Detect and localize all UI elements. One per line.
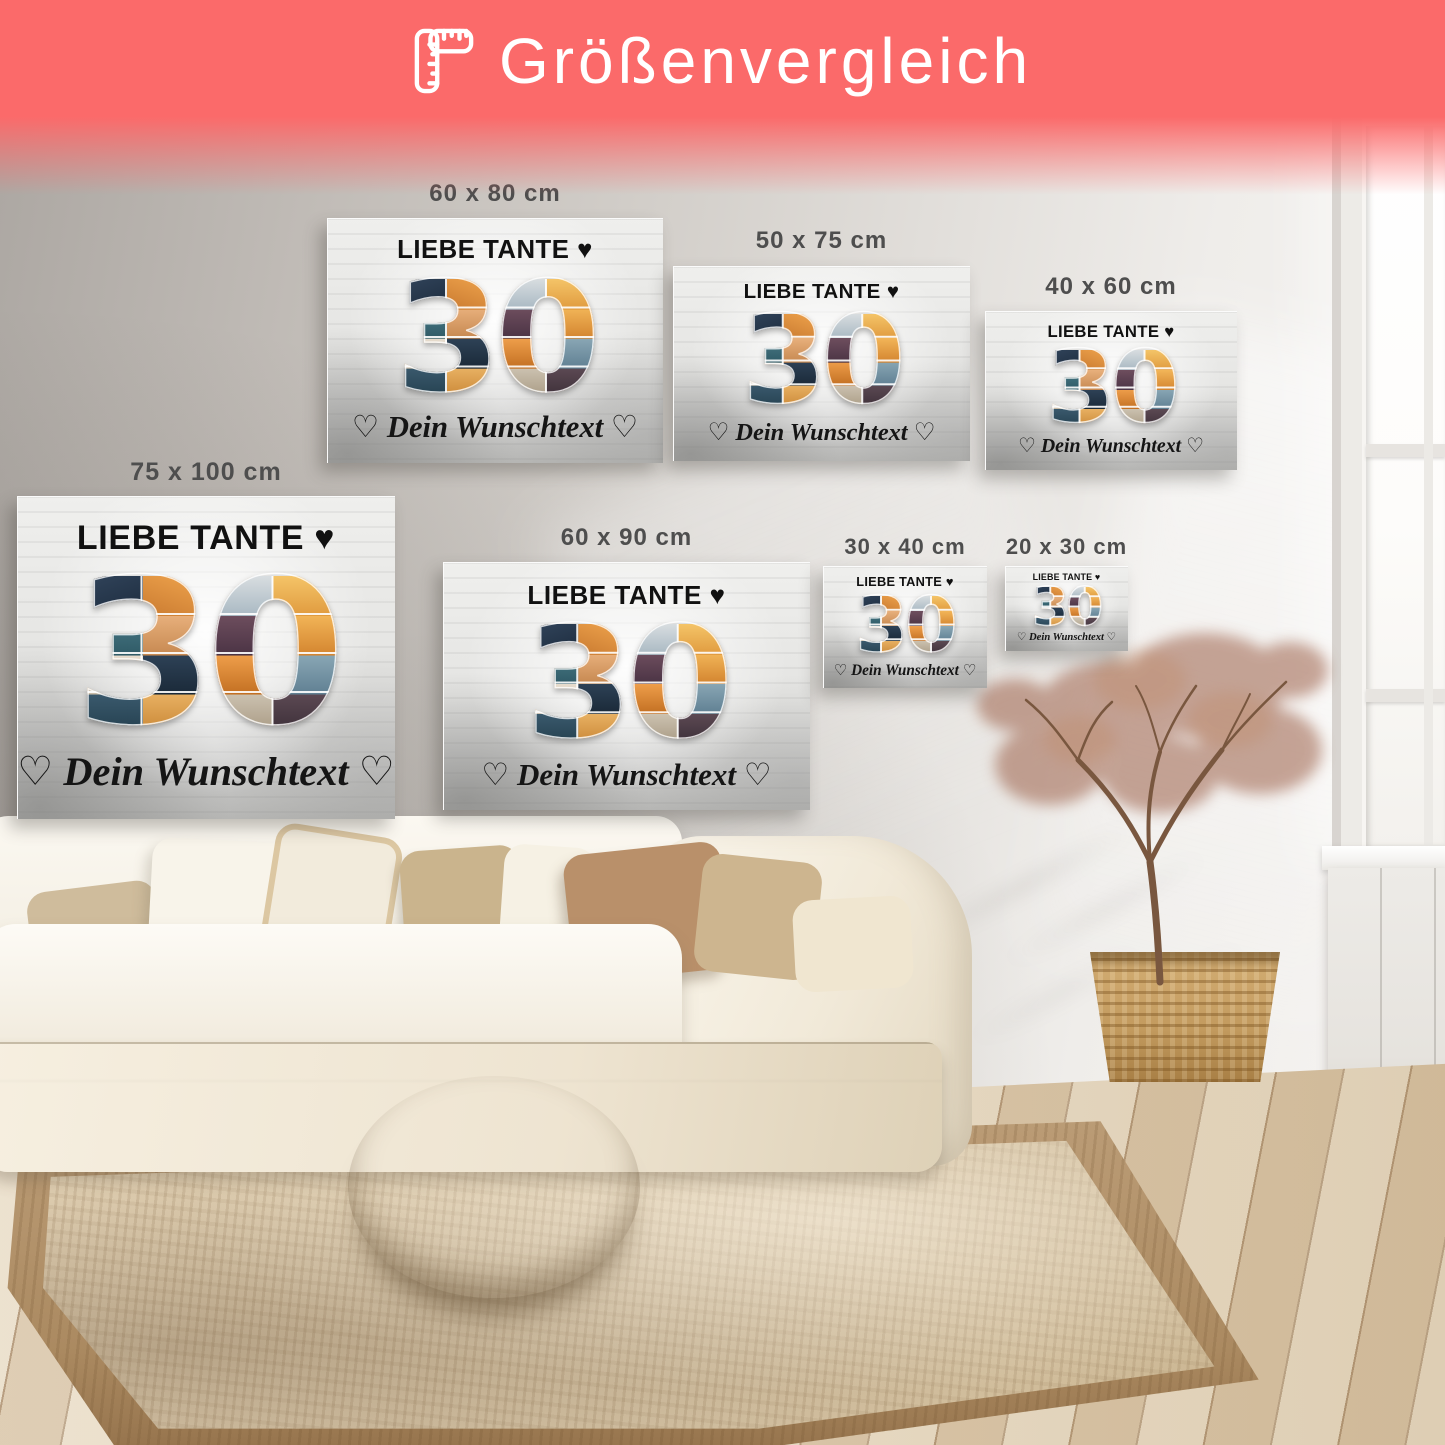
canvas-print-20x30: LIEBE TANTE ♥ 30 ♡ Dein Wunschtext ♡ xyxy=(1005,566,1128,651)
photo-collage-number: 30 xyxy=(742,314,901,408)
photo-collage-number: 30 xyxy=(75,576,338,732)
canvas-print-50x75: LIEBE TANTE ♥ 30 ♡ Dein Wunschtext ♡ xyxy=(673,266,970,461)
size-comparison-mockup: 60 x 80 cm LIEBE TANTE ♥ 30 ♡ Dein Wunsc… xyxy=(0,0,1445,1445)
banner-content: Größenvergleich xyxy=(413,24,1032,98)
canvas-print-40x60: LIEBE TANTE ♥ 30 ♡ Dein Wunschtext ♡ xyxy=(985,311,1237,470)
canvas-print-30x40: LIEBE TANTE ♥ 30 ♡ Dein Wunschtext ♡ xyxy=(823,566,987,688)
rattan-pouf xyxy=(348,1076,640,1298)
canvas-print-75x100: LIEBE TANTE ♥ 30 ♡ Dein Wunschtext ♡ xyxy=(17,496,395,819)
window-mullion xyxy=(1424,126,1433,848)
size-comparison-banner: Größenvergleich xyxy=(0,0,1445,205)
canvas-print-60x80: LIEBE TANTE ♥ 30 ♡ Dein Wunschtext ♡ xyxy=(327,218,663,463)
window-mullion xyxy=(1366,444,1445,457)
size-label-20x30: 20 x 30 cm xyxy=(1005,534,1128,560)
photo-collage-number: 30 xyxy=(395,279,594,397)
size-label-30x40: 30 x 40 cm xyxy=(823,534,987,560)
photo-collage-number: 30 xyxy=(855,596,954,655)
photo-collage-number: 30 xyxy=(1032,587,1101,628)
photo-collage-number: 30 xyxy=(526,624,728,744)
size-label-50x75: 50 x 75 cm xyxy=(673,227,970,255)
banner-title: Größenvergleich xyxy=(499,24,1032,98)
size-label-40x60: 40 x 60 cm xyxy=(985,273,1237,301)
size-label-75x100: 75 x 100 cm xyxy=(17,458,395,487)
photo-collage-number: 30 xyxy=(1046,350,1175,427)
size-label-60x90: 60 x 90 cm xyxy=(443,524,810,552)
ruler-icon xyxy=(413,27,475,95)
canvas-print-60x90: LIEBE TANTE ♥ 30 ♡ Dein Wunschtext ♡ xyxy=(443,562,810,810)
pillow xyxy=(792,895,915,993)
